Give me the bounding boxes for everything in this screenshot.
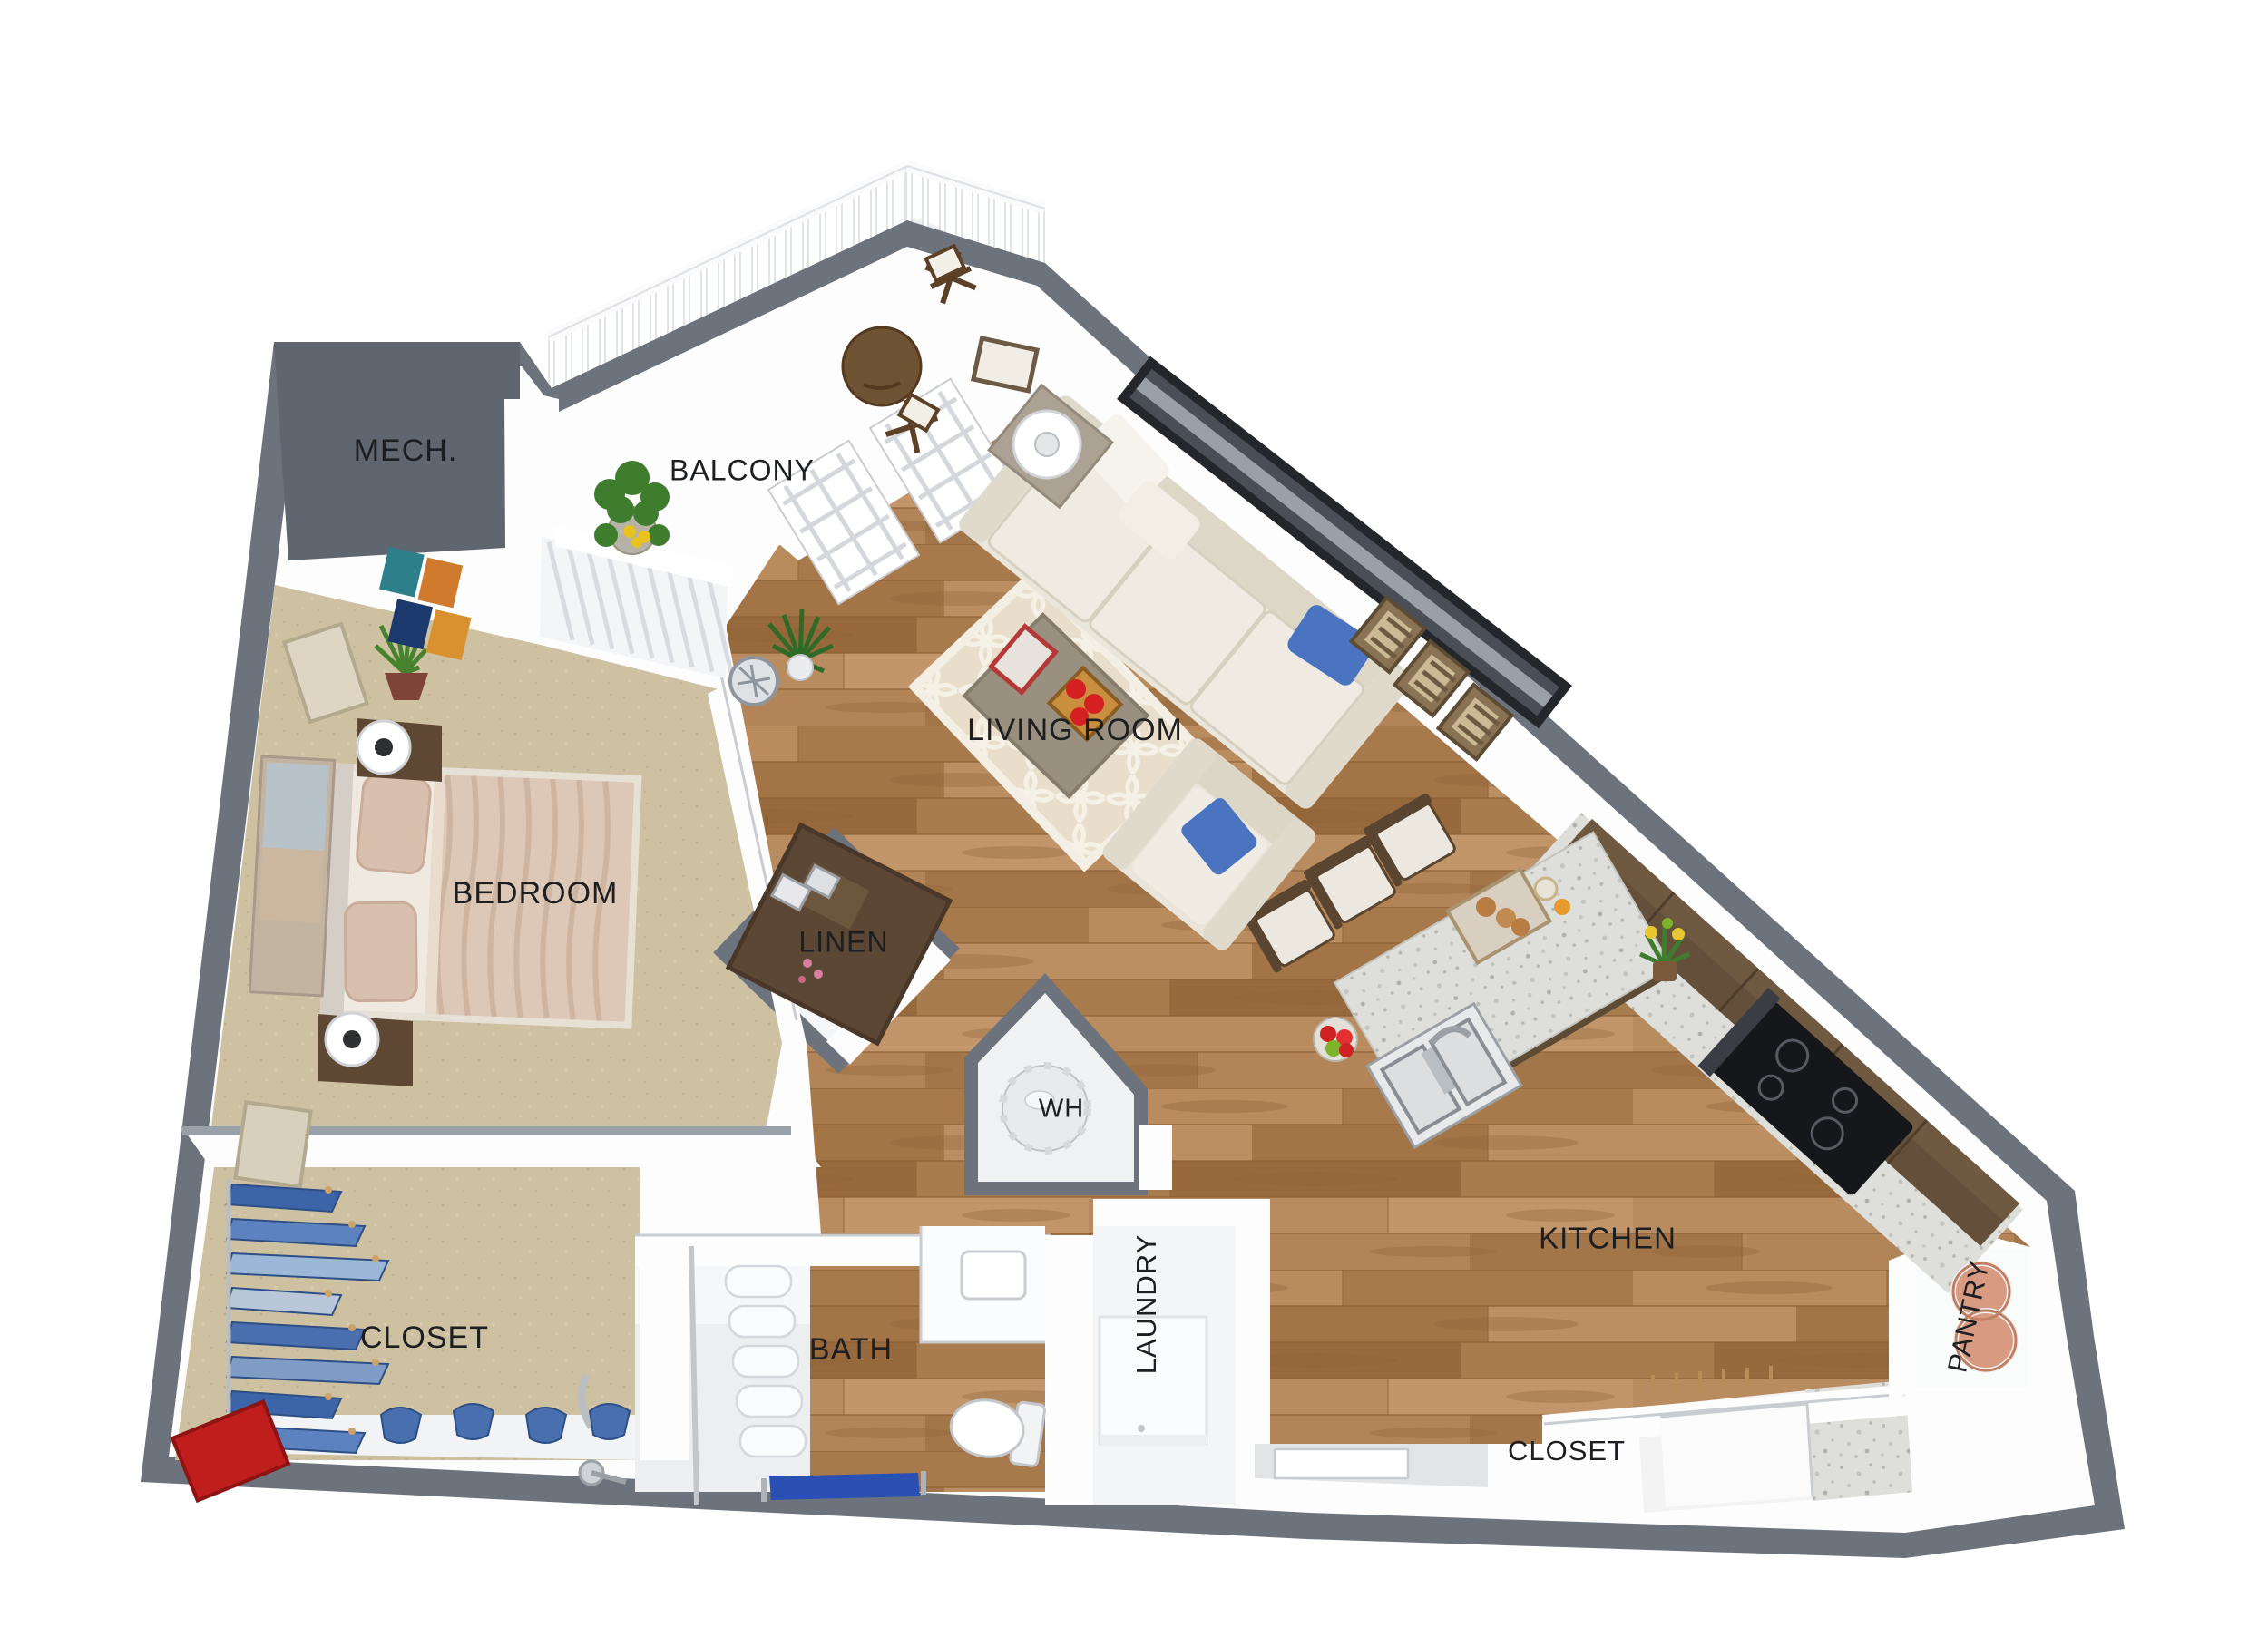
svg-text:BALCONY: BALCONY [670, 453, 815, 486]
svg-text:CLOSET: CLOSET [1508, 1435, 1626, 1466]
svg-text:LIVING ROOM: LIVING ROOM [967, 713, 1183, 747]
svg-text:MECH.: MECH. [354, 434, 458, 468]
svg-text:BATH: BATH [809, 1332, 893, 1367]
svg-text:KITCHEN: KITCHEN [1539, 1222, 1677, 1255]
svg-text:LINEN: LINEN [798, 925, 888, 958]
svg-text:CLOSET: CLOSET [360, 1320, 489, 1355]
svg-text:BEDROOM: BEDROOM [453, 876, 619, 911]
svg-text:LAUNDRY: LAUNDRY [1130, 1234, 1162, 1375]
svg-text:WH: WH [1039, 1095, 1084, 1124]
